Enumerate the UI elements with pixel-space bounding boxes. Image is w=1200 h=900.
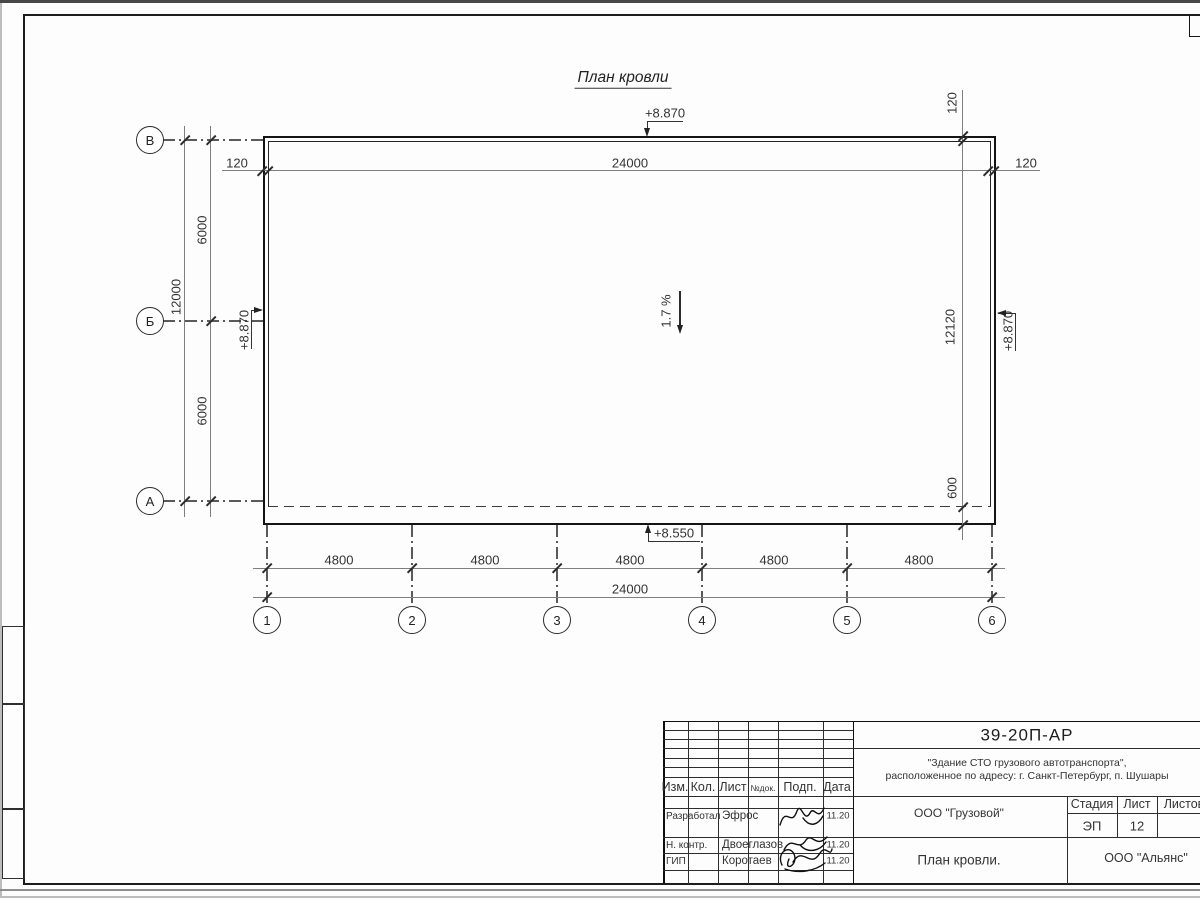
titleblock-line [663,721,1200,723]
elevation-right-arrow [997,310,1006,316]
elevation-right-text: +8.870 [1002,311,1015,351]
axis-bubble-col-3: 3 [543,606,571,634]
dim-text-right-eave: 600 [946,477,959,499]
object-name-line2: расположенное по адресу: г. Санкт-Петерб… [886,771,1169,782]
axis-bubble-col-4: 4 [688,606,716,634]
row-name: Эфрос [722,811,758,823]
slope-arrow-line [679,291,680,325]
row-role: Н. контр. [666,841,707,851]
dim-text-bay: 4800 [760,554,789,567]
parapet-right-line [990,141,991,507]
axis-bubble-row-v: В [136,126,164,154]
sheets-header: Листов [1164,798,1200,811]
dim-text-right-offset: 120 [946,92,959,114]
axis-bubble-col-2: 2 [398,606,426,634]
sheet-bottom-edge [0,889,1200,891]
slope-label: 1.7 % [660,294,673,327]
hidden-wall-line [268,506,991,507]
dim-text-left-lower: 6000 [196,397,209,426]
axis-label: Б [146,314,155,329]
frame-top [23,14,1200,16]
sheet-title: План кровли. [917,853,1000,867]
elevation-top-text: +8.870 [645,107,685,120]
frame-bottom [23,883,1200,885]
sheet-bottom-shadow [0,896,1200,898]
sheet-top-edge [0,0,1200,3]
titleblock-line [688,721,689,884]
roof-outline [263,136,996,525]
elevation-bottom-shelf [648,541,700,542]
dim-line-bottom-total [253,597,1005,598]
stage-value: ЭП [1083,820,1102,833]
col-header-data: Дата [823,781,851,794]
titleblock-line [663,748,1200,749]
axis-line-a [163,500,263,501]
col-header-podp: Подп. [783,781,816,794]
axis-label: 6 [988,613,995,628]
dim-text-bay: 4800 [616,554,645,567]
row-role: Разработал [666,812,720,822]
elevation-top-arrow [644,128,650,137]
titleblock-line [1067,813,1200,814]
col-header-izm: Изм. [662,781,689,794]
axis-bubble-col-6: 6 [978,606,1006,634]
elevation-right-shelf [1015,313,1016,351]
sheet-value: 12 [1130,820,1144,833]
axis-bubble-col-1: 1 [253,606,281,634]
axis-label: 3 [553,613,560,628]
titleblock-line [853,721,855,884]
titleblock-line [663,767,853,768]
elevation-left-text: +8.870 [238,310,251,350]
titleblock-line [663,739,853,740]
signature-gip [775,841,833,875]
axis-label: В [146,133,155,148]
axis-bubble-col-5: 5 [833,606,861,634]
parapet-top-line [269,141,991,142]
elevation-bottom-text: +8.550 [654,527,694,540]
titleblock-line [663,721,665,884]
axis-bubble-row-a: А [136,487,164,515]
elevation-top-shelf [647,121,683,122]
dim-line-left-12000 [184,126,185,517]
drawing-title: План кровли [575,70,672,89]
titleblock-line [1157,796,1158,838]
row-name: Коротаев [722,856,772,868]
margin-box-2 [2,703,25,810]
titleblock-line [663,730,853,731]
dim-text-bay: 4800 [325,554,354,567]
dim-line-bays [253,568,1005,569]
stage-header: Стадия [1071,798,1114,811]
titleblock-line [718,721,719,884]
axis-label: 4 [698,613,705,628]
dim-line-top [222,170,1040,171]
dim-text-top-offset-left: 120 [226,157,248,170]
titleblock-line [663,796,1200,797]
sheet-header: Лист [1123,798,1150,811]
col-header-list: Лист [719,781,746,794]
axis-label: 5 [843,613,850,628]
titleblock-line [1067,796,1068,884]
signature-developer [777,801,827,831]
dim-text-top-offset-right: 120 [1015,157,1037,170]
row-name: Двоеглазов [722,840,783,852]
dim-line-right [962,90,963,540]
dim-text-right-span: 12120 [944,309,957,345]
axis-line-v [163,139,263,140]
col-header-kol: Кол. [691,781,716,794]
titleblock-line [663,777,853,778]
dim-text-top-span: 24000 [612,157,648,170]
col-header-ndoc: №док. [751,784,776,793]
frame-corner-box [1189,14,1200,37]
dim-text-bay: 4800 [471,554,500,567]
elevation-left-shelf [251,310,252,349]
margin-box-3 [2,808,25,879]
dim-text-left-total: 12000 [170,279,183,315]
drawing-sheet: План кровли В Б А 1 2 3 4 5 6 120 24000 … [0,0,1200,900]
elevation-left-arrow [254,307,263,313]
object-name-line1: "Здание СТО грузового автотранспорта", [927,758,1126,769]
dim-text-bay: 4800 [905,554,934,567]
row-date: 11.20 [826,811,849,821]
titleblock-line [1117,796,1118,838]
dim-text-left-upper: 6000 [196,216,209,245]
dim-text-bottom-total: 24000 [612,583,648,596]
axis-label: 1 [263,613,270,628]
titleblock-line [663,758,853,759]
org-center: ООО "Грузовой" [914,807,1004,819]
parapet-left-line [268,141,269,507]
doc-code: 39-20П-АР [980,727,1073,744]
slope-arrow-head [677,325,683,334]
axis-label: 2 [408,613,415,628]
elevation-bottom-arrow [645,524,651,533]
margin-box-1 [2,626,25,705]
axis-label: А [146,494,155,509]
axis-bubble-row-b: Б [136,307,164,335]
row-role: ГИП [666,857,686,867]
company-name: ООО "Альянс" [1104,852,1188,865]
